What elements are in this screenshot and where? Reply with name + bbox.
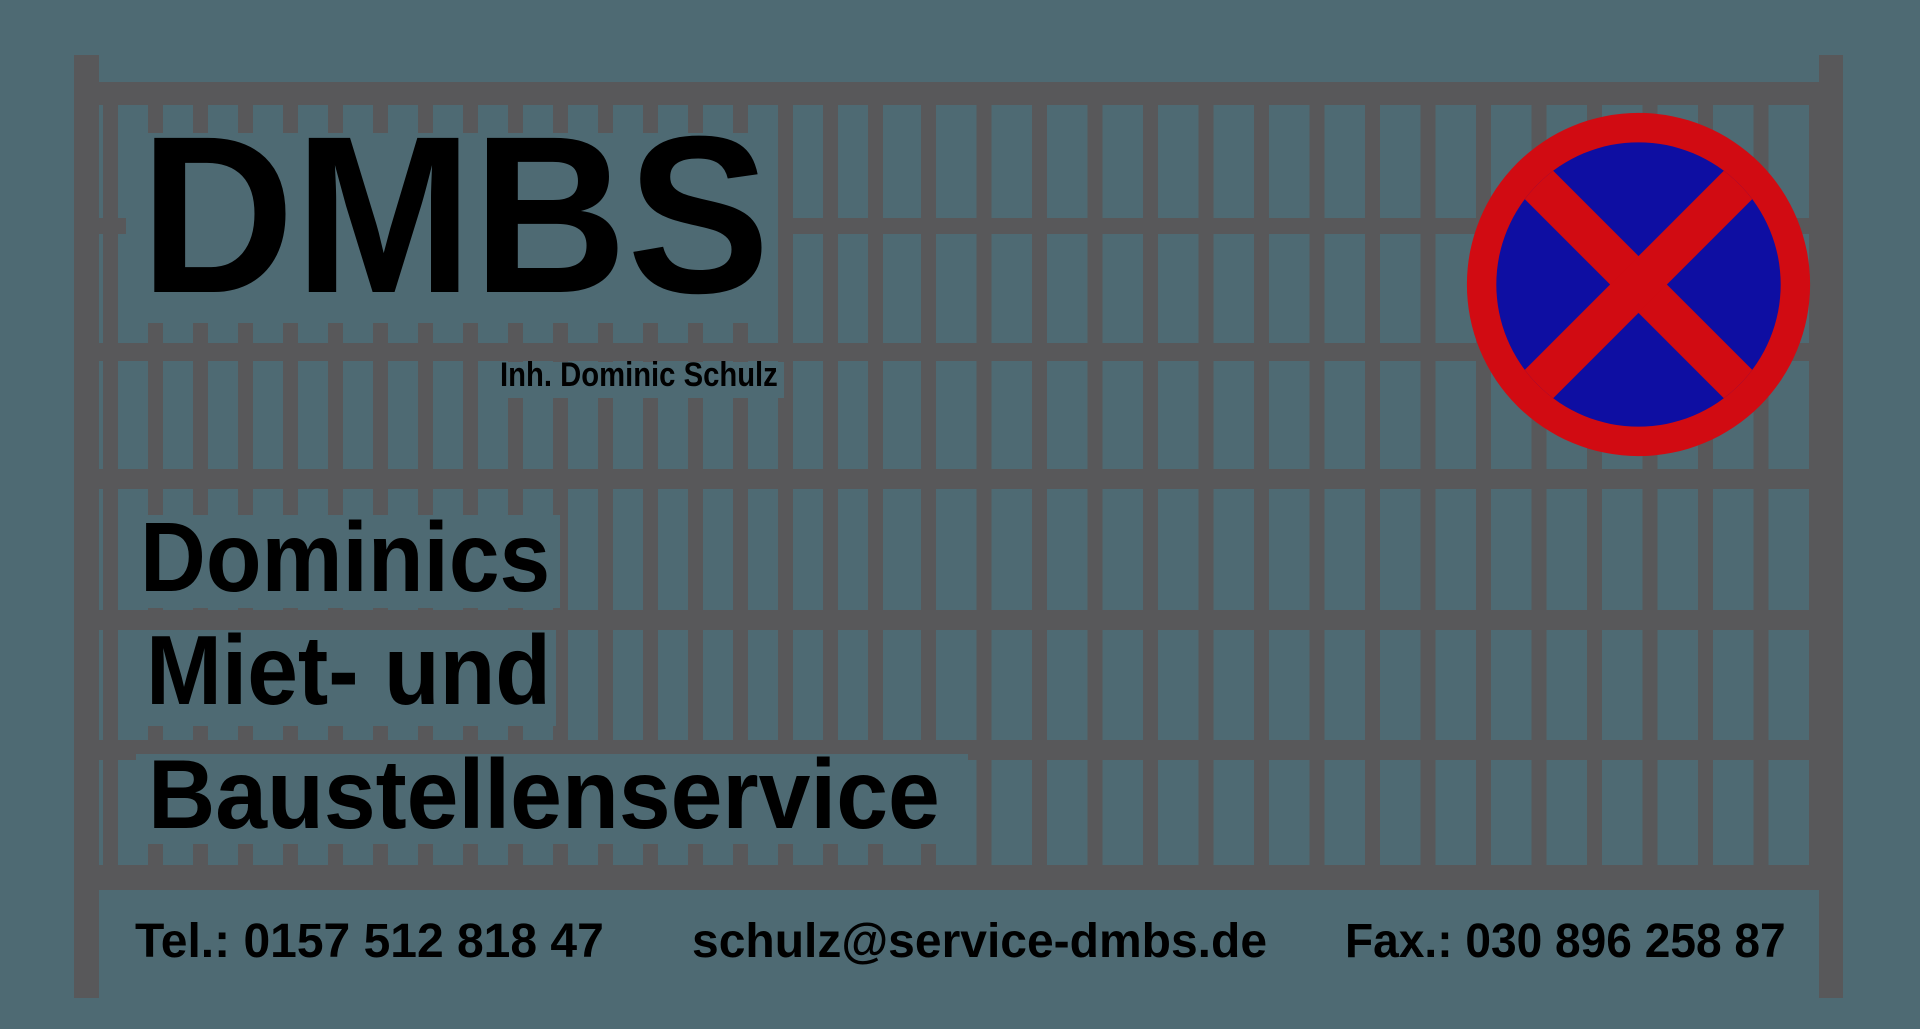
fence-bottom-rail [74, 865, 1843, 890]
email-address: schulz@service-dmbs.de [692, 918, 1267, 966]
tagline-line-3: Baustellenservice [148, 745, 940, 843]
fence-rail-4 [74, 469, 1843, 489]
no-stopping-sign-icon [1462, 108, 1815, 461]
owner-line: Inh. Dominic Schulz [500, 358, 778, 392]
tagline-line-1: Dominics [140, 508, 550, 606]
phone-number: Tel.: 0157 512 818 47 [135, 918, 604, 966]
tagline-line-2: Miet- und [146, 621, 551, 719]
brand-name: DMBS [140, 103, 770, 327]
fence-post-right [1819, 55, 1843, 998]
fax-number: Fax.: 030 896 258 87 [1345, 918, 1786, 966]
logo-canvas: DMBS Inh. Dominic Schulz Dominics Miet- … [0, 0, 1920, 1029]
fence-post-left [74, 55, 99, 998]
